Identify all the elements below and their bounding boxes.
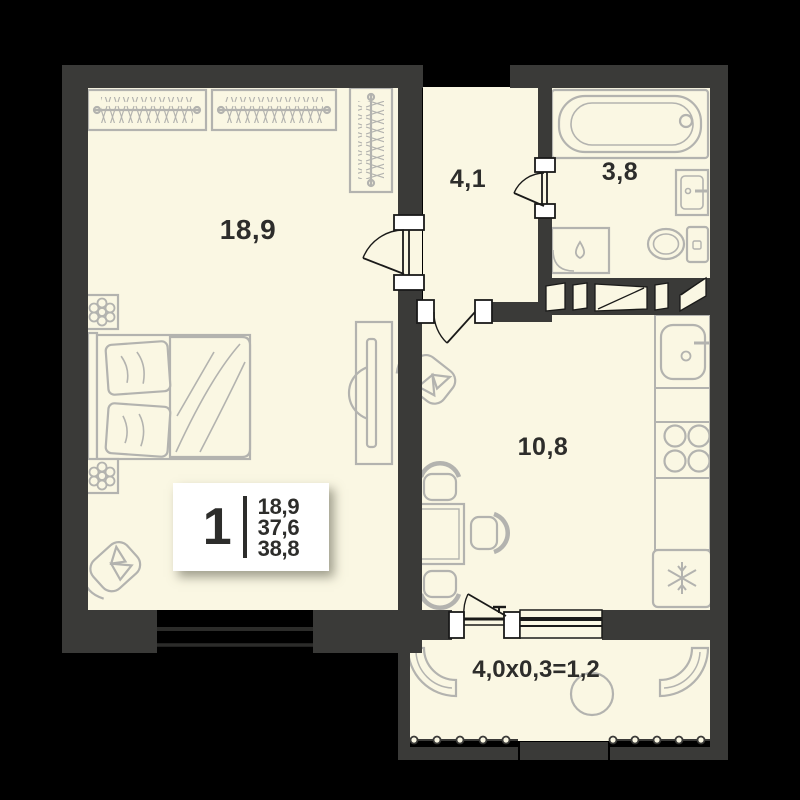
legend-areas: 18,9 37,6 38,8 — [258, 496, 300, 559]
balcony-area-label: 4,0x0,3=1,2 — [444, 658, 628, 682]
wardrobe-icon — [88, 90, 206, 130]
kitchen-area-label: 10,8 — [504, 435, 582, 460]
balcony-slab-left — [398, 747, 518, 760]
wall-kitchen-balcony-right — [602, 610, 710, 640]
wardrobe-icon — [212, 90, 336, 130]
window-kitchen-balcony — [520, 610, 602, 638]
hallway-floor — [423, 87, 538, 302]
legend-card: 1 18,9 37,6 38,8 — [173, 483, 329, 571]
wall-hall-bath-upper — [538, 88, 552, 160]
hallway-area-label: 4,1 — [434, 167, 502, 192]
wall-top-right — [510, 65, 728, 88]
window-living-room — [157, 629, 313, 645]
wall-top-left — [62, 65, 423, 88]
dining-table-icon — [416, 504, 464, 564]
bed-icon — [88, 333, 250, 461]
fridge-icon — [653, 550, 711, 607]
wall-balcony-left — [398, 640, 410, 750]
wall-kitchen-balcony-left — [398, 610, 452, 640]
legend-floor-area: 37,6 — [258, 517, 300, 538]
floor-plan: 18,9 4,1 3,8 10,8 4,0x0,3=1,2 1 18,9 37,… — [0, 0, 800, 800]
living-room-area-label: 18,9 — [190, 216, 306, 244]
wardrobe-icon — [350, 88, 392, 192]
nightstand-plant-icon — [86, 295, 118, 329]
wall-right — [710, 65, 728, 758]
legend-living-area: 18,9 — [258, 496, 300, 517]
wall-living-hall-upper — [398, 88, 422, 215]
legend-rooms-count: 1 — [203, 504, 232, 551]
kitchen-counter — [655, 315, 710, 550]
nightstand-plant-icon — [86, 459, 118, 493]
legend-total-area: 38,8 — [258, 538, 300, 559]
washbasin-icon — [676, 170, 708, 215]
tv-stand-icon — [349, 322, 392, 464]
wall-bottom-left — [62, 610, 157, 653]
floor-plan-drawing — [0, 0, 800, 800]
balcony-slab-right — [610, 747, 728, 760]
legend-divider — [243, 496, 247, 558]
wall-left — [62, 65, 88, 653]
bathroom-area-label: 3,8 — [586, 160, 654, 185]
wall-living-kitchen — [398, 290, 422, 610]
bathtub-icon — [552, 90, 708, 158]
balcony-slab-mid — [520, 742, 608, 760]
washing-machine-icon — [552, 228, 609, 273]
